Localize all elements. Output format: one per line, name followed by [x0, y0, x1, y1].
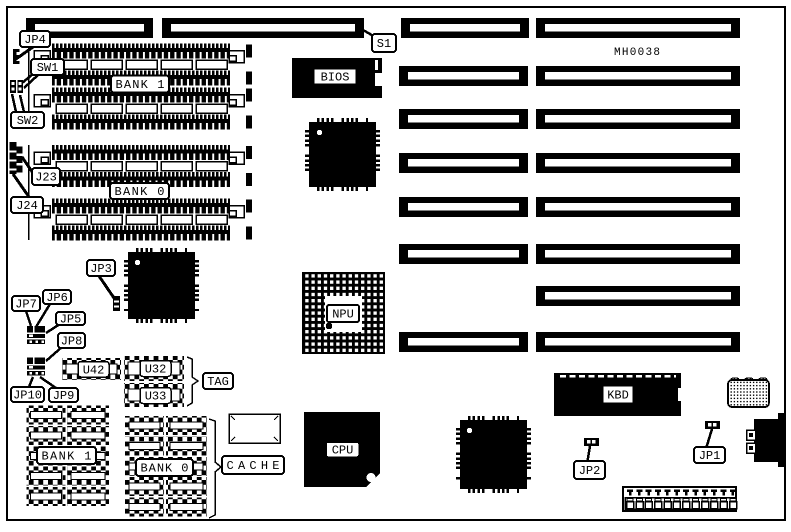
svg-text:J24: J24: [16, 199, 38, 213]
svg-text:JP6: JP6: [46, 291, 68, 305]
svg-text:TAG: TAG: [207, 375, 229, 389]
svg-text:JP9: JP9: [53, 389, 75, 403]
svg-text:JP7: JP7: [15, 298, 37, 312]
svg-text:U33: U33: [145, 390, 167, 404]
svg-text:SW1: SW1: [37, 61, 59, 75]
svg-text:SW2: SW2: [17, 114, 39, 128]
svg-text:JP4: JP4: [24, 33, 46, 47]
svg-text:NPU: NPU: [332, 308, 354, 322]
svg-text:CPU: CPU: [332, 444, 354, 458]
svg-text:S1: S1: [377, 37, 391, 51]
svg-text:JP2: JP2: [579, 464, 601, 478]
svg-text:BIOS: BIOS: [321, 71, 350, 85]
svg-text:KBD: KBD: [607, 389, 629, 403]
svg-text:BANK 0: BANK 0: [141, 462, 189, 476]
svg-text:JP1: JP1: [699, 449, 721, 463]
svg-text:U42: U42: [83, 363, 105, 377]
svg-text:JP5: JP5: [60, 313, 82, 327]
svg-text:JP8: JP8: [61, 335, 83, 349]
svg-text:U32: U32: [145, 363, 167, 377]
svg-text:J23: J23: [35, 171, 57, 185]
svg-text:JP3: JP3: [90, 262, 112, 276]
svg-text:JP10: JP10: [13, 389, 42, 403]
svg-text:MH0038: MH0038: [614, 47, 660, 59]
